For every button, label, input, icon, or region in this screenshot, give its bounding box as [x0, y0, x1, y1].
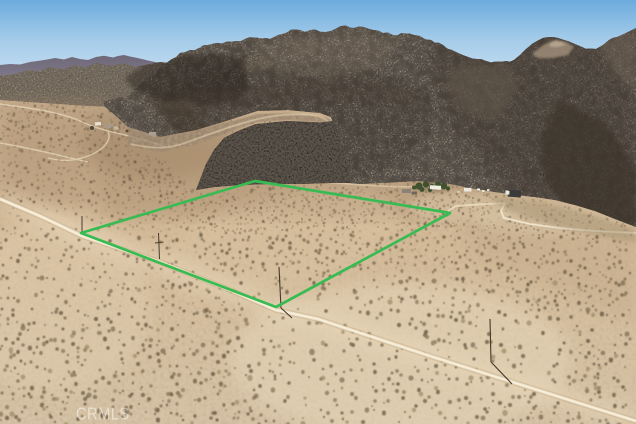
svg-text:CRMLS: CRMLS	[76, 404, 130, 424]
